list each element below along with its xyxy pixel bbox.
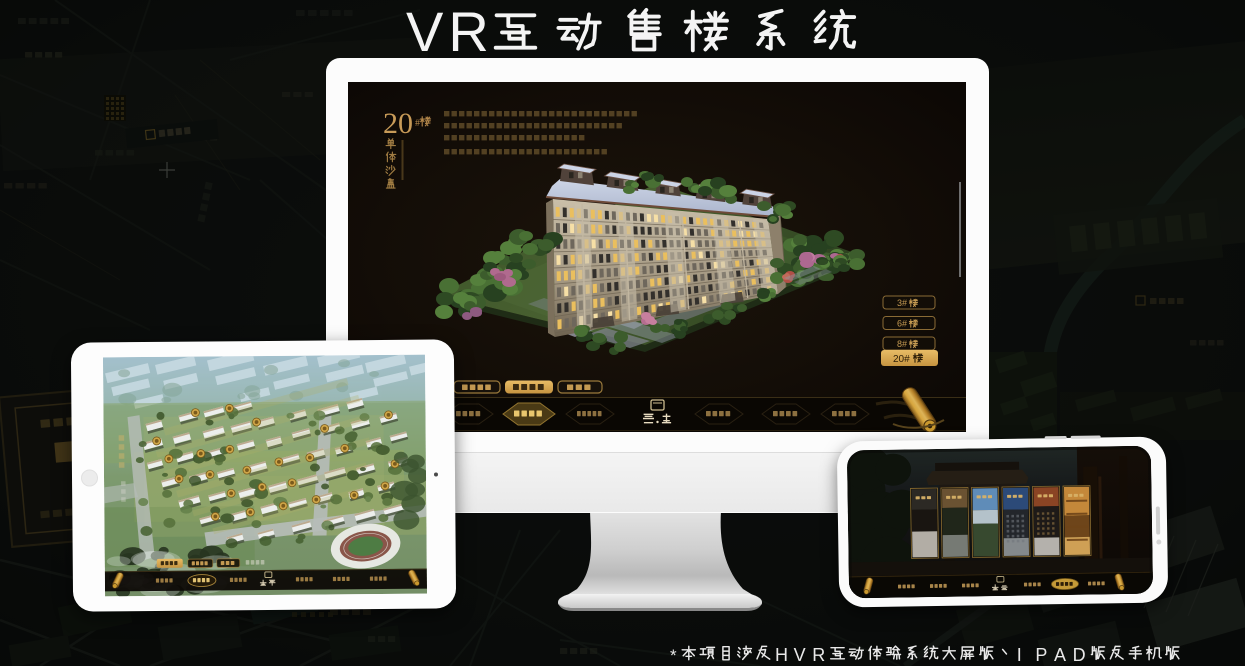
svg-text:8#: 8# <box>897 339 907 349</box>
svg-text:V: V <box>794 645 806 665</box>
svg-text:P: P <box>1035 645 1047 665</box>
svg-text:R: R <box>812 645 825 665</box>
svg-text:*: * <box>670 646 677 665</box>
svg-text:6#: 6# <box>897 319 907 329</box>
svg-text:20: 20 <box>383 107 413 140</box>
svg-text:I: I <box>1017 645 1022 665</box>
svg-text:H: H <box>775 645 788 665</box>
svg-text:VR: VR <box>406 0 494 58</box>
svg-text:D: D <box>1073 645 1086 665</box>
svg-text:20#: 20# <box>893 354 910 365</box>
svg-text:A: A <box>1054 645 1066 665</box>
svg-text:3#: 3# <box>897 298 907 308</box>
svg-text:#: # <box>415 118 420 129</box>
